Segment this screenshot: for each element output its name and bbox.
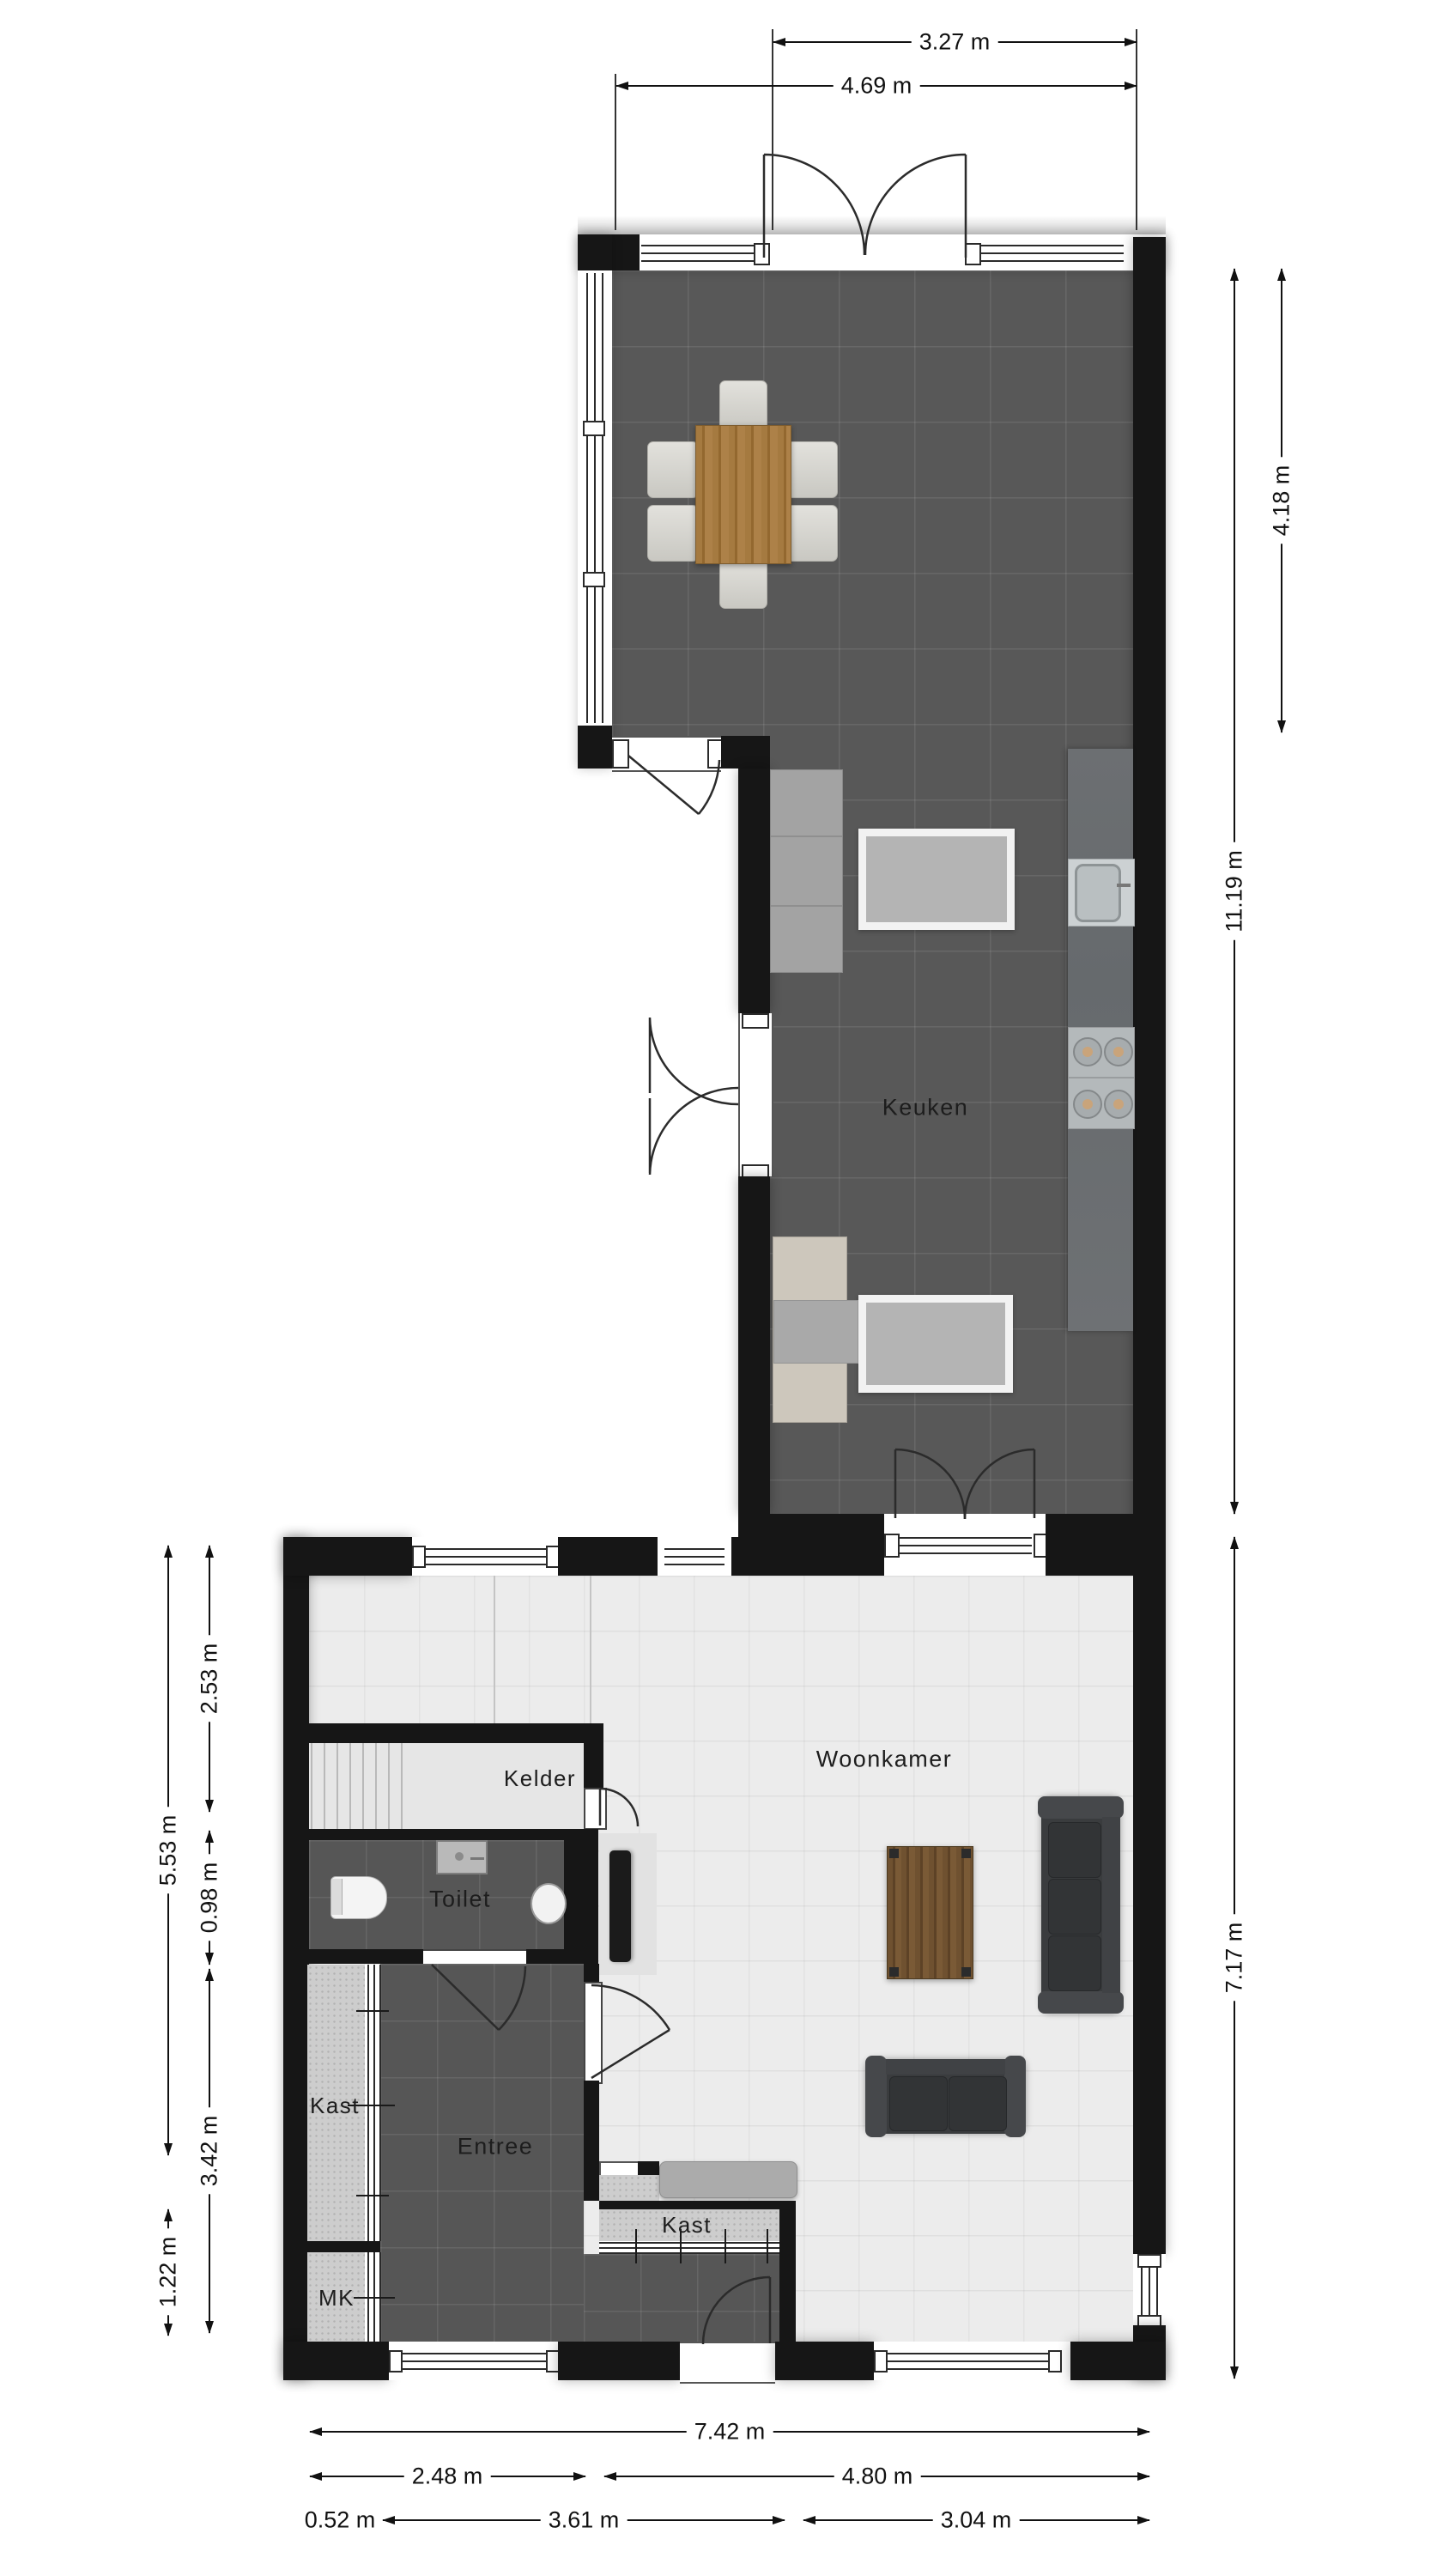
table-leg bbox=[961, 1967, 971, 1977]
right-outer-wall-upper bbox=[1133, 237, 1166, 2254]
island-cooktop bbox=[1068, 1027, 1135, 1129]
room-label-entree: Entree bbox=[458, 2136, 534, 2159]
cellar-top-wall bbox=[309, 1723, 603, 1743]
counter-divider bbox=[771, 905, 842, 907]
closet-left-door-lines bbox=[367, 1965, 381, 2241]
kitchen-left-wall-lower bbox=[738, 1176, 770, 1514]
sofa-small bbox=[865, 2059, 1026, 2134]
bottom-wall-d bbox=[1070, 2342, 1166, 2380]
door-jamb bbox=[612, 739, 629, 769]
niche-end bbox=[638, 2161, 659, 2175]
label-leader-line bbox=[354, 2297, 395, 2299]
kitchen-counter bbox=[770, 769, 843, 973]
sofa-cushion bbox=[949, 2076, 1007, 2131]
burner-icon bbox=[1104, 1037, 1133, 1066]
basin-tap-icon bbox=[470, 1857, 484, 1860]
door-jamb bbox=[965, 243, 981, 265]
closet-bottom-right-wall bbox=[779, 2201, 796, 2346]
dim-top-outer-label: 4.69 m bbox=[834, 73, 920, 100]
kitchen-top-window-left bbox=[641, 245, 754, 262]
step-wall bbox=[721, 736, 770, 769]
closet-mk-divider bbox=[307, 2241, 380, 2252]
toilet-right-wall bbox=[564, 1829, 598, 1966]
toilet-top-wall bbox=[309, 1829, 598, 1840]
island-sink-module bbox=[1068, 859, 1135, 927]
room-label-kelder: Kelder bbox=[504, 1767, 576, 1789]
room-label-kast-bottom: Kast bbox=[662, 2214, 712, 2236]
stairs-up bbox=[494, 1576, 591, 1726]
window-jamb bbox=[1137, 2254, 1161, 2268]
toilet-tank bbox=[331, 1879, 343, 1915]
dining-chair bbox=[647, 505, 699, 562]
cooktop-divider bbox=[1069, 1077, 1134, 1078]
sofa-armrest bbox=[1004, 2056, 1026, 2137]
bottom-wall-a bbox=[283, 2342, 389, 2380]
cabinet-gray-segment bbox=[773, 1300, 858, 1364]
window-mullion bbox=[583, 572, 605, 587]
room-label-toilet: Toilet bbox=[429, 1888, 491, 1911]
dim-bottom-mid-label: 3.61 m bbox=[541, 2507, 627, 2534]
table-leg bbox=[889, 1849, 899, 1858]
coffee-table bbox=[887, 1846, 973, 1979]
sofa-large bbox=[1041, 1796, 1120, 2014]
burner-icon bbox=[1104, 1090, 1133, 1119]
sofa-cushion bbox=[1048, 1822, 1101, 1878]
sofa-backrest bbox=[1102, 1817, 1120, 1993]
extension-line bbox=[772, 29, 773, 230]
dim-bottom-full-label: 7.42 m bbox=[687, 2419, 773, 2445]
entree-bottom-window bbox=[401, 2353, 546, 2370]
kitchen-corner-left-top bbox=[578, 234, 612, 270]
dim-left-inner-mid-label: 0.98 m bbox=[197, 1855, 223, 1941]
kitchen-living-wall-left bbox=[738, 1514, 884, 1576]
extension-line bbox=[1136, 29, 1137, 230]
living-top-wall-a bbox=[283, 1537, 412, 1576]
bottom-wall-c bbox=[775, 2342, 874, 2380]
sink-bowl bbox=[1075, 864, 1121, 922]
entree-right-wall-bottom bbox=[584, 2081, 599, 2201]
window-jamb bbox=[1048, 2350, 1062, 2372]
dining-chair bbox=[719, 380, 767, 430]
window-mullion bbox=[583, 421, 605, 436]
kitchen-french-door-threshold bbox=[738, 1013, 773, 1176]
cellar-right-wall bbox=[584, 1743, 603, 1788]
door-tick bbox=[635, 2229, 637, 2263]
door-jamb bbox=[884, 1534, 900, 1558]
sofa-cushion bbox=[889, 2076, 948, 2131]
table-leg bbox=[889, 1967, 899, 1977]
window-jamb bbox=[389, 2350, 403, 2372]
closet-bottom-top-wall bbox=[599, 2201, 796, 2209]
front-door-threshold bbox=[680, 2342, 775, 2384]
dim-left-outer-upper-label: 5.53 m bbox=[155, 1807, 182, 1894]
window-jamb bbox=[874, 2350, 888, 2372]
extension-line bbox=[615, 74, 616, 230]
kitchen-living-wall-right bbox=[1046, 1514, 1133, 1576]
dim-bottom-left-label: 2.48 m bbox=[404, 2464, 491, 2490]
cellar-door-jamb bbox=[584, 1788, 607, 1830]
living-bottom-window bbox=[886, 2353, 1058, 2370]
table-leg bbox=[961, 1849, 971, 1858]
dim-left-inner-upper-label: 2.53 m bbox=[197, 1636, 223, 1722]
sofa-cushion bbox=[1048, 1935, 1101, 1991]
sofa-armrest bbox=[865, 2056, 887, 2137]
kitchen-table-upper bbox=[858, 829, 1015, 930]
basin-drain-icon bbox=[455, 1852, 464, 1861]
room-label-woonkamer: Woonkamer bbox=[816, 1748, 953, 1771]
dim-right-lower-label: 7.17 m bbox=[1222, 1915, 1248, 2002]
closet-bottom-door-lines bbox=[599, 2242, 779, 2254]
toilet-bottom-wall-left bbox=[283, 1949, 423, 1964]
sideboard bbox=[659, 2161, 797, 2198]
burner-icon bbox=[1073, 1090, 1102, 1119]
door-tick bbox=[767, 2229, 768, 2263]
bottom-wall-b bbox=[558, 2342, 680, 2380]
floorplan-canvas: Keuken Kelder Toilet bbox=[0, 0, 1449, 2576]
living-top-wall-b bbox=[558, 1537, 658, 1576]
sink-tap-icon bbox=[1117, 884, 1131, 887]
dim-bottom-small-label: 0.52 m bbox=[297, 2507, 384, 2534]
sofa-armrest bbox=[1038, 1796, 1124, 1819]
kitchen-top-window-right bbox=[979, 245, 1124, 262]
dim-top-inner-label: 3.27 m bbox=[912, 29, 998, 56]
kitchen-corner-left-bottom bbox=[578, 726, 612, 769]
dining-table bbox=[695, 425, 791, 564]
kitchen-cabinet-row bbox=[773, 1236, 847, 1423]
wash-basin bbox=[436, 1840, 488, 1874]
dim-right-upper-label: 4.18 m bbox=[1269, 458, 1295, 544]
dining-chair bbox=[647, 441, 699, 498]
burner-icon bbox=[1073, 1037, 1102, 1066]
dining-chair bbox=[786, 441, 838, 498]
kitchen-french-door-bottom bbox=[650, 1088, 738, 1175]
dining-chair bbox=[786, 505, 838, 562]
room-label-kast-left: Kast bbox=[310, 2094, 360, 2117]
counter-divider bbox=[771, 835, 842, 837]
living-right-window bbox=[1141, 2263, 1158, 2317]
dim-left-inner-lower-label: 3.42 m bbox=[197, 2108, 223, 2195]
door-tick bbox=[356, 2195, 389, 2196]
sofa-cushion bbox=[1048, 1879, 1101, 1935]
window-jamb bbox=[412, 1546, 426, 1568]
kitchen-floor-dining bbox=[612, 270, 1133, 736]
room-label-mk: MK bbox=[318, 2287, 355, 2309]
tv bbox=[609, 1850, 631, 1962]
door-tick bbox=[724, 2229, 726, 2263]
sofa-backrest bbox=[886, 2059, 1005, 2075]
toilet-bottom-wall-right bbox=[526, 1949, 598, 1964]
kitchen-living-door-track bbox=[898, 1537, 1032, 1554]
dim-bottom-right-label: 4.80 m bbox=[834, 2464, 921, 2490]
entree-living-door-jamb bbox=[584, 1982, 603, 2084]
kitchen-left-window bbox=[586, 273, 603, 723]
dim-left-outer-lower-label: 1.22 m bbox=[155, 2229, 182, 2316]
entree-right-wall-top bbox=[584, 1964, 599, 1982]
living-top-wall-c bbox=[731, 1537, 742, 1576]
entree-floor-extension bbox=[584, 2254, 779, 2342]
exterior-shadow-top bbox=[578, 216, 1166, 234]
niche-shelf bbox=[599, 2175, 659, 2201]
toilet-fixture bbox=[330, 1876, 387, 1919]
living-top-window2 bbox=[664, 1548, 724, 1565]
living-top-window1 bbox=[424, 1548, 546, 1565]
kitchen-table-lower bbox=[858, 1295, 1013, 1393]
dining-chair bbox=[719, 559, 767, 609]
hand-basin bbox=[530, 1883, 567, 1924]
door-jamb bbox=[754, 243, 770, 265]
room-label-keuken: Keuken bbox=[882, 1097, 969, 1120]
dim-bottom-far-right-label: 3.04 m bbox=[933, 2507, 1020, 2534]
kitchen-left-wall-upper bbox=[738, 769, 770, 1013]
dim-right-full-label: 11.19 m bbox=[1222, 842, 1248, 940]
kitchen-french-door-top bbox=[650, 1018, 738, 1104]
door-tick bbox=[356, 2010, 389, 2012]
sofa-armrest bbox=[1038, 1991, 1124, 2014]
door-jamb bbox=[742, 1013, 769, 1029]
cellar-stairs bbox=[311, 1743, 414, 1829]
